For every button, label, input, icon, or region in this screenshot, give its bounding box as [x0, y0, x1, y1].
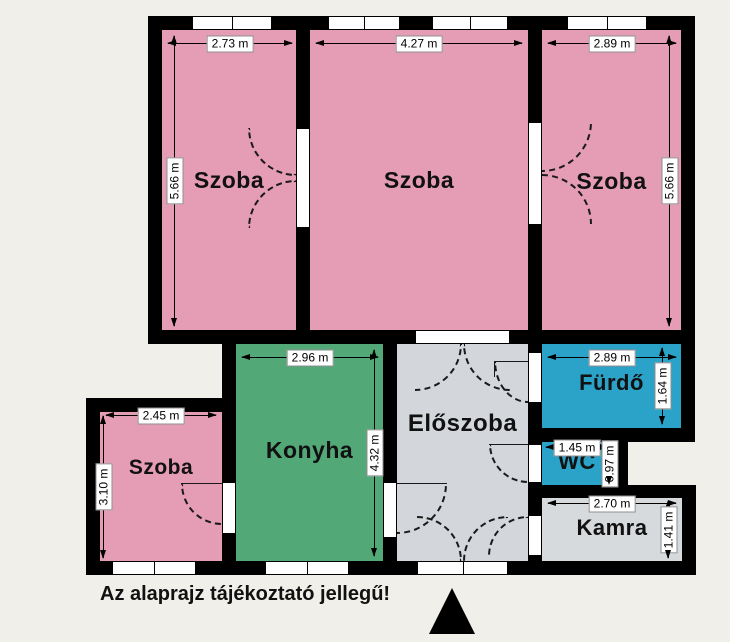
- dim-label: 1.41 m: [660, 506, 677, 553]
- dim-kamra-width: 2.70 m: [548, 503, 676, 504]
- door-szoba2-szoba3: [528, 122, 542, 225]
- disclaimer-text: Az alaprajz tájékoztató jellegű!: [100, 583, 390, 606]
- door-szoba2-eloszoba: [415, 330, 510, 344]
- dim-label: 2.96 m: [287, 349, 334, 366]
- window-szoba-middle-2: [432, 16, 508, 30]
- door-konyha-eloszoba: [383, 482, 397, 538]
- dim-label: 2.45 m: [138, 407, 185, 424]
- window-szoba-top-right: [567, 16, 647, 30]
- dim-konyha-width: 2.96 m: [242, 357, 378, 358]
- dim-szoba-bl-height: 3.10 m: [103, 416, 104, 558]
- window-szoba-top-left: [192, 16, 272, 30]
- dim-konyha-height: 4.32 m: [374, 350, 375, 556]
- room-label-konyha: Konyha: [236, 437, 383, 464]
- room-label-szoba-top-right: Szoba: [542, 168, 681, 195]
- dim-label: 0.97 m: [601, 441, 618, 488]
- dim-label: 4.32 m: [366, 430, 383, 477]
- door-leaf-furdo-v: [494, 361, 495, 377]
- dim-label: 2.70 m: [589, 495, 636, 512]
- dim-label: 2.73 m: [207, 35, 254, 52]
- dim-label: 1.64 m: [654, 363, 671, 410]
- exterior-wall-right-upper: [681, 16, 695, 442]
- door-szoba-bl-konyha: [222, 482, 236, 534]
- dim-kamra-height: 1.41 m: [668, 501, 669, 558]
- door-eloszoba-wc: [528, 444, 542, 483]
- floor-plan: Szoba Szoba Szoba Konyha Előszoba Fürdő …: [0, 0, 730, 642]
- dim-szoba-top-middle-width: 4.27 m: [316, 43, 522, 44]
- door-leaf-szoba-bl: [181, 483, 222, 484]
- room-label-szoba-top-middle: Szoba: [310, 167, 528, 194]
- dim-label: 3.10 m: [95, 464, 112, 511]
- window-szoba-middle-1: [328, 16, 400, 30]
- door-szoba1-szoba2: [296, 128, 310, 228]
- room-label-szoba-bottom-left: Szoba: [100, 456, 222, 480]
- dim-furdo-width: 2.89 m: [548, 357, 676, 358]
- dim-label: 2.89 m: [589, 349, 636, 366]
- door-eloszoba-kamra: [528, 515, 542, 556]
- dim-wc-height: 0.97 m: [609, 444, 610, 484]
- window-konyha: [265, 561, 349, 575]
- dim-label: 1.45 m: [554, 439, 601, 456]
- dim-label: 5.66 m: [661, 158, 678, 205]
- entrance-opening: [417, 561, 508, 575]
- dim-szoba-bl-width: 2.45 m: [106, 415, 216, 416]
- room-label-eloszoba: Előszoba: [397, 410, 528, 438]
- window-szoba-bottom-left: [112, 561, 196, 575]
- dim-wc-width: 1.45 m: [546, 447, 608, 448]
- door-eloszoba-furdo: [528, 352, 542, 403]
- dim-furdo-height: 1.64 m: [662, 348, 663, 424]
- dim-label: 5.66 m: [166, 158, 183, 205]
- door-leaf-wc: [489, 444, 528, 445]
- dim-label: 4.27 m: [396, 35, 443, 52]
- dim-label: 2.89 m: [589, 35, 636, 52]
- dim-szoba-top-left-width: 2.73 m: [168, 43, 292, 44]
- door-leaf-furdo-h: [494, 361, 528, 362]
- dim-szoba-top-left-height: 5.66 m: [174, 36, 175, 326]
- dim-szoba-top-right-height: 5.66 m: [669, 36, 670, 326]
- exterior-wall-left: [148, 16, 162, 336]
- door-leaf-konyha: [397, 483, 447, 484]
- north-arrow-icon: [429, 588, 475, 634]
- dim-szoba-top-right-width: 2.89 m: [548, 43, 676, 44]
